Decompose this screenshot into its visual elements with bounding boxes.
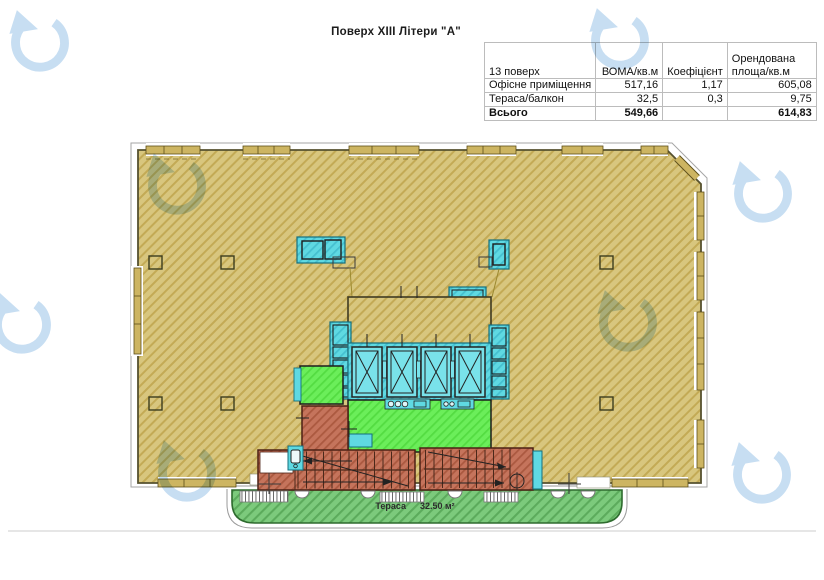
- left-window: [131, 266, 143, 356]
- elevator-bank: [348, 334, 491, 400]
- elevator-car: [455, 347, 485, 397]
- shaft-stack-right: [489, 325, 509, 399]
- terrace-area-value: 32.50 м²: [420, 501, 455, 511]
- staircase-right: [420, 448, 533, 490]
- service-room-green: [294, 366, 343, 404]
- lobby-cyan-niche: [349, 434, 372, 447]
- wc-fixture: [288, 446, 303, 470]
- elevator-car: [352, 347, 382, 397]
- vestibule-red: [296, 406, 357, 452]
- elevator-car: [421, 347, 451, 397]
- staircase-left: [258, 450, 415, 490]
- right-windows: [694, 192, 706, 468]
- door-fixtures: [385, 399, 474, 409]
- riser-shaft: [533, 451, 542, 489]
- floor-plan-drawing: [0, 0, 824, 580]
- elevator-car: [387, 347, 417, 397]
- terrace-label: Тераса32.50 м²: [315, 501, 515, 511]
- elevator-lobby-green: [348, 399, 491, 452]
- page-canvas: Поверх XIII Літери "А" 13 поверх ВОМА/кв…: [0, 0, 824, 580]
- terrace-name: Тераса: [375, 501, 406, 511]
